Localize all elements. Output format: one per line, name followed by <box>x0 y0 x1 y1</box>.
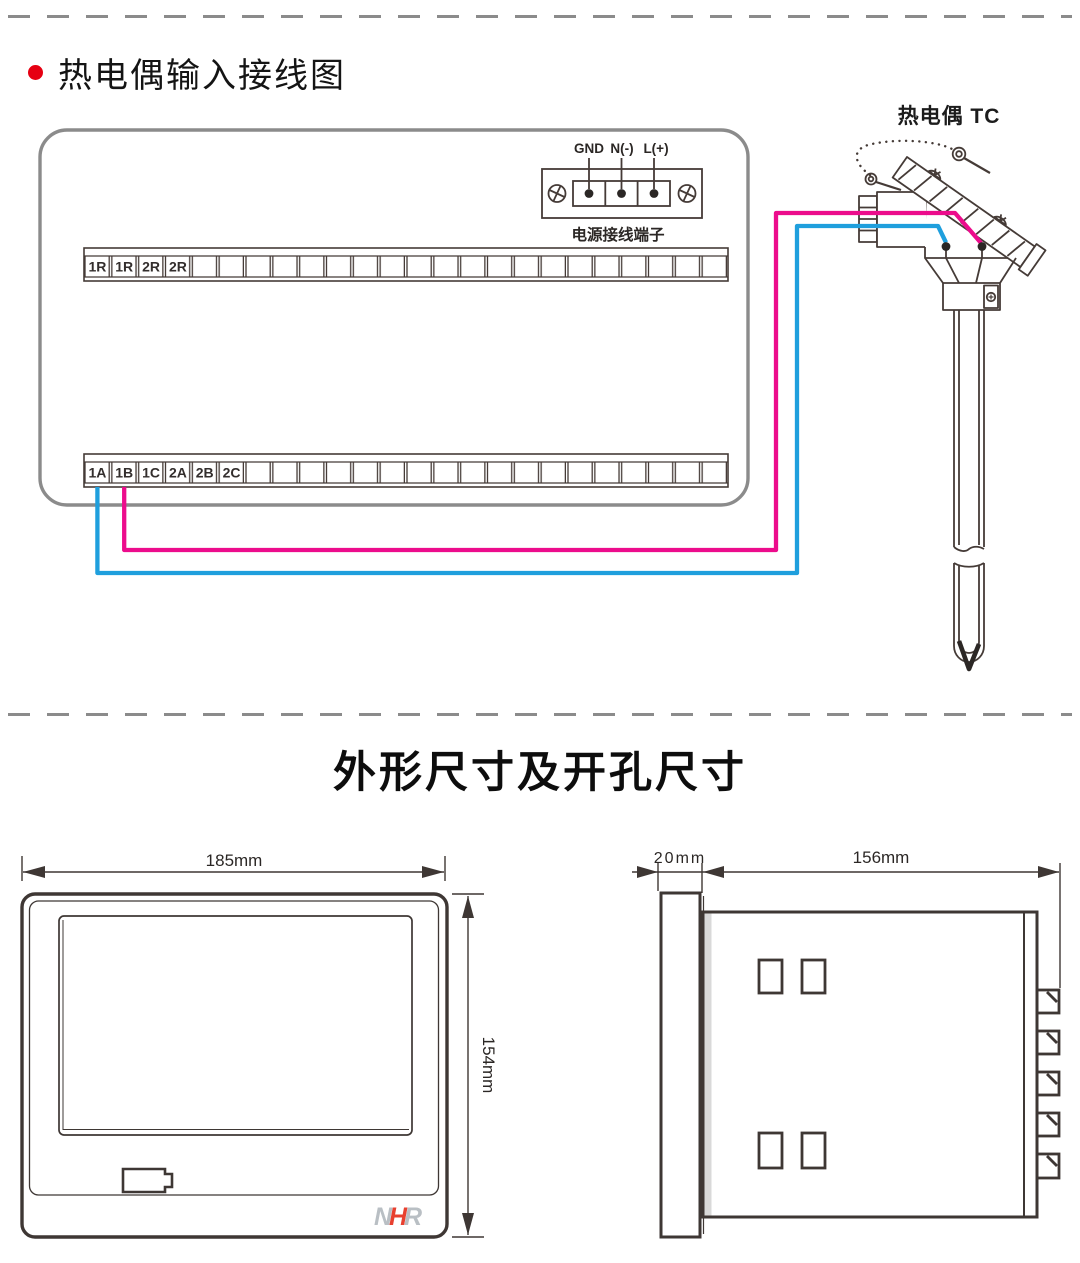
svg-text:2R: 2R <box>142 259 160 275</box>
top-dashed-border <box>8 15 1072 18</box>
instrument-panel-outline <box>40 130 748 505</box>
thermocouple-drawing <box>857 141 1048 669</box>
front-outer-case <box>22 894 447 1237</box>
red-bullet-icon <box>28 65 43 80</box>
wiring-section-header: 热电偶输入接线图 <box>28 48 346 97</box>
side-bezel <box>661 893 700 1237</box>
svg-text:1B: 1B <box>115 465 133 481</box>
probe-tube <box>954 310 984 662</box>
rear-terminal-blocks <box>1037 990 1059 1178</box>
gnd-terminal-dot <box>585 189 594 198</box>
depth-length-dimensions <box>632 863 1060 988</box>
svg-text:1C: 1C <box>142 465 160 481</box>
terminal-strip-bottom: 1A 1B 1C 2A 2B 2C <box>84 454 728 487</box>
device-front-view: 185mm 154mm N H R <box>0 840 520 1260</box>
gnd-label: GND <box>574 141 604 156</box>
front-height-label: 154mm <box>479 1037 498 1094</box>
head-left-block <box>877 192 927 247</box>
svg-text:1R: 1R <box>115 259 133 275</box>
junction-v-mark <box>959 641 979 669</box>
terminal-strip-top: 1R 1R 2R 2R <box>84 248 728 281</box>
power-terminal-caption: 电源接线端子 <box>571 225 665 244</box>
dimensions-section-title: 外形尺寸及开孔尺寸 <box>0 738 1080 800</box>
mount-screw-right-icon <box>679 185 696 202</box>
hex-fitting <box>859 196 877 242</box>
side-length-label: 156mm <box>853 848 910 867</box>
usb-cover <box>123 1169 172 1192</box>
front-width-label: 185mm <box>206 851 263 870</box>
chain-ring-right-icon <box>953 148 966 161</box>
nhr-logo: N H R <box>374 1203 422 1231</box>
thermocouple-label: 热电偶 TC <box>898 104 1001 128</box>
svg-text:R: R <box>404 1203 422 1231</box>
section-divider-dashed <box>8 713 1072 716</box>
svg-text:1A: 1A <box>88 465 106 481</box>
line-label: L(+) <box>643 141 668 156</box>
wiring-section-title: 热电偶输入接线图 <box>58 48 346 97</box>
power-terminal-block <box>542 158 702 218</box>
svg-text:2R: 2R <box>169 259 187 275</box>
device-side-view: 20mm 156mm <box>600 840 1080 1260</box>
mount-screw-left-icon <box>549 185 566 202</box>
front-inner-bezel <box>30 901 439 1195</box>
side-body <box>703 912 1037 1217</box>
wiring-diagram: GND N(-) L(+) 电源接线端子 1R 1R 2R 2R 1A 1B 1… <box>0 95 1080 705</box>
tc-terminal-dot-positive <box>978 242 987 251</box>
tc-terminal-dot-negative <box>942 242 951 251</box>
svg-text:2C: 2C <box>223 465 241 481</box>
svg-text:2B: 2B <box>196 465 214 481</box>
neutral-terminal-dot <box>617 189 626 198</box>
neutral-label: N(-) <box>610 141 633 156</box>
svg-text:2A: 2A <box>169 465 187 481</box>
front-screen <box>59 916 412 1135</box>
side-depth-label: 20mm <box>654 850 706 867</box>
svg-text:1R: 1R <box>88 259 106 275</box>
line-terminal-dot <box>650 189 659 198</box>
vent-holes <box>759 960 825 1168</box>
